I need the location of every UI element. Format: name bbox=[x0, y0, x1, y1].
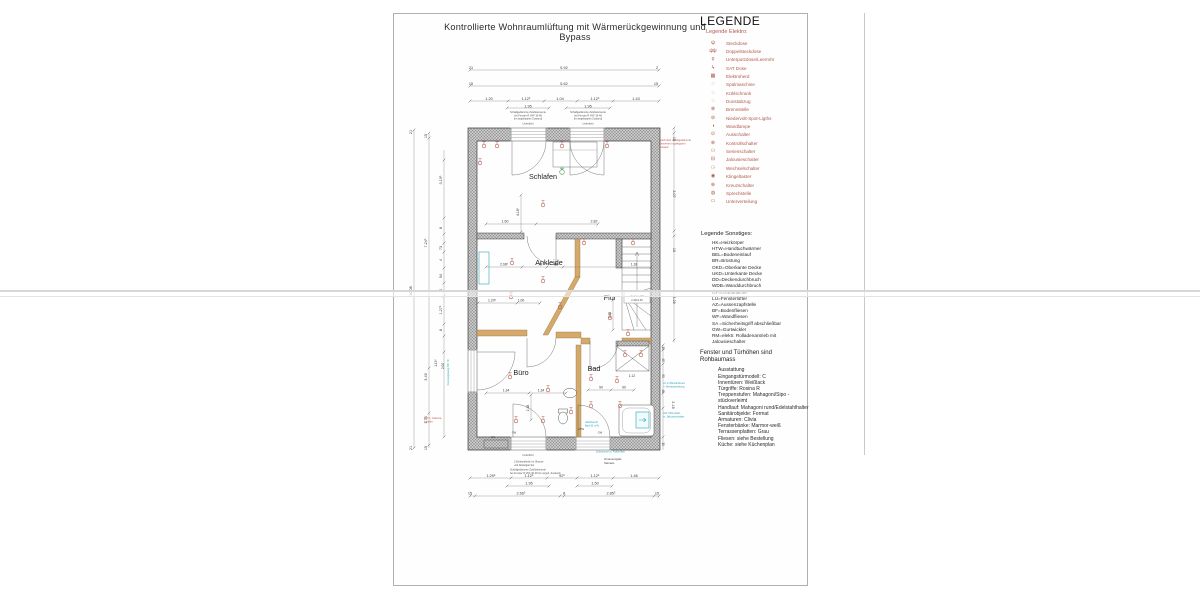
legend-item: ⊛ Kontrollschalter bbox=[700, 139, 812, 147]
legend-symbol-icon: ϙ bbox=[700, 57, 726, 62]
plan-label: 1.18 bbox=[631, 263, 638, 267]
legend-symbol-icon: ⚆ bbox=[700, 166, 726, 171]
legend-sonstiges-heading: Legende Sonstiges: bbox=[701, 231, 812, 237]
legend-symbol-icon: ψψ bbox=[700, 49, 726, 54]
plan-label: Bad bbox=[588, 364, 601, 373]
legend-item: ⚇ Serienschalter bbox=[700, 147, 812, 155]
legend-item-label: Wandlampe bbox=[726, 124, 750, 129]
plan-label: 1.12⁵ bbox=[525, 474, 534, 478]
plan-label: 2.40x1.25 bbox=[631, 298, 643, 302]
legend-item-label: Sprechstelle bbox=[726, 191, 751, 196]
plan-label: 1.20 bbox=[485, 97, 492, 101]
plan-label: HK bbox=[491, 435, 495, 439]
plan-label: 45 bbox=[661, 358, 665, 362]
door-swings bbox=[477, 141, 618, 437]
plan-label: 46 bbox=[661, 389, 665, 393]
plan-label: 15 bbox=[661, 346, 665, 350]
plan-label: 21 bbox=[409, 446, 413, 450]
plan-label: 1.29⁵ bbox=[487, 474, 496, 478]
plan-label: 73 bbox=[439, 246, 443, 250]
legend-item: ⊙ Ausschalter bbox=[700, 131, 812, 139]
plan-label: 4.18⁵ bbox=[516, 207, 520, 216]
plan-label: 2.18 bbox=[671, 401, 675, 408]
legend-symbol-icon: ▦ bbox=[700, 74, 726, 79]
legend-symbol-icon: ⊗ bbox=[700, 107, 726, 112]
legend-symbol-icon: ⊛ bbox=[700, 141, 726, 146]
legend-item-label: Dunstabzug bbox=[726, 99, 751, 104]
legend-item: ◌ Spülmaschine bbox=[700, 81, 812, 89]
legend-item: ϟ SAT Dose bbox=[700, 64, 812, 72]
ausstattung-item: Treppenstufen: Mahagoni/Sipo - stückverl… bbox=[718, 392, 810, 404]
plan-label: 1.95 bbox=[525, 482, 532, 486]
legend-symbol-icon: ◌ bbox=[700, 82, 726, 87]
legend-item-label: Kreuzschalter bbox=[726, 183, 754, 188]
legend-elektro-list: ψ Steckdose ψψ Doppelsteckdose ϙ Unterpu… bbox=[700, 39, 812, 206]
electrical-symbol bbox=[569, 408, 573, 414]
plan-label: 3.26 bbox=[672, 296, 676, 303]
plan-label: 3.10⁵ bbox=[439, 175, 443, 184]
plan-label: Elemente im gekippten bbox=[659, 142, 686, 146]
plan-label: m. Jalousieschalter bbox=[663, 416, 685, 419]
electrical-symbol bbox=[495, 142, 499, 148]
plan-label: 90 bbox=[622, 386, 626, 390]
plan-label: und Ablaufgarnitur bbox=[514, 464, 534, 467]
plan-label: 1.12⁵ bbox=[591, 474, 600, 478]
legend-item: ⊗ Brennstelle bbox=[700, 106, 812, 114]
legend-item: ▦ Elektroherd bbox=[700, 72, 812, 80]
plan-label: 5.62 bbox=[560, 82, 567, 86]
plan-label: 2.82 bbox=[591, 220, 598, 224]
plan-label: 21 bbox=[409, 130, 413, 134]
plan-label: 15 bbox=[655, 492, 659, 496]
plan-label: Unterlicht bbox=[523, 122, 534, 126]
electrical-symbol bbox=[541, 417, 545, 423]
plan-label: 86 bbox=[554, 263, 558, 267]
legend-heading: LEGENDE bbox=[700, 14, 812, 28]
plan-label: 1.95 bbox=[524, 105, 531, 109]
electrical-symbols-layer bbox=[478, 142, 643, 423]
plan-label: 8 bbox=[439, 329, 443, 331]
plan-label: n. Westausrichtung bbox=[663, 386, 685, 389]
plan-label: 2.85⁵ bbox=[607, 492, 616, 496]
plan-label: 4 bbox=[439, 259, 443, 261]
electrical-symbol bbox=[541, 201, 545, 207]
plan-label: 1.20⁵ bbox=[488, 299, 497, 303]
plan-label: 1.34 bbox=[538, 389, 545, 393]
plan-label: GW bbox=[598, 431, 603, 435]
plan-label: 1.27⁵ bbox=[439, 305, 443, 314]
scan-canvas: Kontrollierte Wohnraumlüftung mit Wärmer… bbox=[0, 0, 1200, 600]
legend-symbol-icon: ◑ bbox=[700, 124, 726, 129]
plan-label: 1.43 bbox=[632, 97, 639, 101]
electrical-symbol bbox=[582, 239, 586, 245]
legend-item-label: Spülmaschine bbox=[726, 82, 755, 87]
ausstattung-item: Handlauf: Mahagoni rund/Edelstahlhalter bbox=[718, 405, 810, 411]
plan-label: 1.13⁵ bbox=[434, 359, 438, 367]
electrical-symbol bbox=[541, 277, 545, 283]
legend-item-label: Unterputzdose/Leerrohr bbox=[726, 57, 775, 62]
legend-symbol-icon: ◉ bbox=[700, 174, 726, 179]
plan-label: 1.60 bbox=[502, 220, 509, 224]
ausstattung-item: Küche: siehe Küchenplan bbox=[718, 442, 810, 448]
legend-item-label: Serienschalter bbox=[726, 149, 755, 154]
electrical-symbol bbox=[615, 377, 619, 383]
plan-label: 5.92 bbox=[560, 66, 567, 70]
shower bbox=[616, 346, 649, 371]
legend-item-label: Brennstelle bbox=[726, 107, 749, 112]
legend-item-label: Kontrollschalter bbox=[726, 141, 758, 146]
legend-item: ψ Steckdose bbox=[700, 39, 812, 47]
legend-item: ◍ Sprechstelle bbox=[700, 189, 812, 197]
plan-label: 1.34 bbox=[503, 389, 510, 393]
legend-symbol-icon: ⊕ bbox=[700, 183, 726, 188]
electrical-symbol bbox=[546, 386, 550, 392]
plan-label: 21 bbox=[469, 66, 473, 70]
wardrobe bbox=[479, 252, 489, 284]
plan-label: 90 bbox=[599, 386, 603, 390]
legend-item: ⊕ Kreuzschalter bbox=[700, 181, 812, 189]
electrical-symbol bbox=[589, 375, 593, 381]
electrical-symbol bbox=[508, 373, 512, 379]
plan-label: 1.04 bbox=[556, 97, 563, 101]
legend-symbol-icon: ψ bbox=[700, 41, 726, 46]
electrical-symbol bbox=[605, 142, 609, 148]
legend-item: ◉ Klingeltaster bbox=[700, 173, 812, 181]
legend-item-label: Niedervolt-Spot-Ligths bbox=[726, 116, 771, 121]
plan-label: 94 bbox=[439, 274, 443, 278]
staircase bbox=[622, 239, 651, 330]
plan-label: Bad 60 m³/h bbox=[585, 424, 600, 428]
plan-label: 1.46 bbox=[630, 474, 637, 478]
legend-panel: LEGENDE Legende Elektro: ψ Steckdose ψψ … bbox=[700, 14, 812, 448]
legend-symbol-icon: ⊙ bbox=[700, 132, 726, 137]
plan-label: 15 bbox=[654, 82, 658, 86]
legend-item-label: Unterverteilung bbox=[726, 199, 757, 204]
legend-item-label: SAT Dose bbox=[726, 66, 747, 71]
plan-label: Unterlicht bbox=[523, 453, 534, 457]
legend-item-label: Ausschalter bbox=[726, 132, 750, 137]
bed bbox=[553, 142, 597, 167]
plan-label: Zustand bbox=[659, 145, 669, 149]
legend-elektro-heading: Legende Elektro: bbox=[706, 29, 812, 35]
plan-label: GW bbox=[512, 431, 517, 435]
legend-symbol-icon: ◍ bbox=[700, 191, 726, 196]
legend-item: ▭ Unterverteilung bbox=[700, 198, 812, 206]
electrical-symbol bbox=[626, 330, 630, 336]
plan-label: 1.53 bbox=[608, 312, 612, 319]
plan-label: 1.50 bbox=[591, 482, 598, 486]
legend-item-label: Klingeltaster bbox=[726, 174, 751, 179]
plan-label: 1.12⁵ bbox=[522, 97, 531, 101]
plan-label: 8 bbox=[439, 227, 443, 229]
legend-item: ψψ Doppelsteckdose bbox=[700, 47, 812, 55]
plan-label: 15 bbox=[469, 82, 473, 86]
legend-item-label: Steckdose bbox=[726, 41, 747, 46]
legend-item-label: Elektroherd bbox=[726, 74, 750, 79]
legend-symbol-icon: ⊘ bbox=[700, 116, 726, 121]
electrical-symbol bbox=[631, 239, 635, 245]
radiator bbox=[484, 440, 508, 448]
legend-abbrev: RM=elektr. Rolladenantrieb mit Jalousies… bbox=[712, 333, 807, 345]
plan-label: 90 bbox=[661, 374, 665, 378]
ausstattung-list: Eingangstürmodell: CInnentüren: Weißlack… bbox=[718, 374, 812, 448]
plan-label: 15 bbox=[672, 137, 676, 141]
plan-label: 15 bbox=[672, 248, 676, 252]
plan-label: 15 bbox=[661, 442, 665, 446]
legend-item-label: Doppelsteckdose bbox=[726, 49, 761, 54]
legend-item-label: Wechselschalter bbox=[726, 166, 760, 171]
plan-label: (im angekippten Zustand) bbox=[514, 118, 543, 121]
outer-walls bbox=[468, 128, 660, 450]
plan-label: bei Fenster R VKF 36 48 (im angek. Zusta… bbox=[510, 472, 561, 475]
plan-label: Zuluftventil m. Pollenfilter bbox=[596, 450, 625, 454]
plan-label: Abluftventil bbox=[585, 420, 598, 424]
plan-label: 1.12 bbox=[629, 374, 635, 378]
electrical-symbol bbox=[589, 402, 593, 408]
plan-label: 2.08⁵ bbox=[500, 263, 509, 267]
legend-item: ◑ Wandlampe bbox=[700, 122, 812, 130]
rohbaumass-note: Fenster und Türhöhen sind Rohbaumass bbox=[700, 350, 778, 364]
plan-label: 1.12⁵ bbox=[591, 97, 600, 101]
plan-label: 1.00 bbox=[518, 299, 525, 303]
legend-symbol-icon: ▭ bbox=[700, 199, 726, 204]
electrical-symbol bbox=[482, 142, 486, 148]
legend-symbol-icon: ⊟ bbox=[700, 157, 726, 162]
toilet bbox=[559, 409, 568, 424]
plan-label: 8 bbox=[563, 492, 565, 496]
plan-label: Unterlicht bbox=[583, 122, 594, 126]
legend-symbol-icon: ⚇ bbox=[700, 149, 726, 154]
plan-label: 15 bbox=[424, 446, 428, 450]
plan-label: 1.95 bbox=[584, 105, 591, 109]
plan-label: Satinato bbox=[604, 461, 615, 465]
electrical-symbol bbox=[514, 417, 518, 423]
plan-label: 3.49 bbox=[424, 373, 428, 380]
plan-label: 92⁵ bbox=[559, 474, 565, 478]
legend-item: ◌ Dunstabzug bbox=[700, 97, 812, 105]
vent-arrow bbox=[636, 412, 649, 428]
plan-label: HTW bbox=[578, 427, 584, 431]
scan-edge-line bbox=[864, 13, 865, 455]
plant-symbol bbox=[560, 167, 565, 174]
electrical-symbol bbox=[478, 159, 482, 165]
plan-label: 15 bbox=[468, 492, 472, 496]
plan-label: Festverglasung BR 73⁵ bbox=[446, 359, 450, 386]
plan-label: 2 bbox=[656, 66, 658, 70]
legend-item: ⚆ Wechselschalter bbox=[700, 164, 812, 172]
electrical-symbol bbox=[510, 259, 514, 265]
plan-label: 2.66⁵ bbox=[517, 492, 526, 496]
legend-symbol-icon: ◌ bbox=[700, 99, 726, 104]
plan-label: 15 bbox=[424, 134, 428, 138]
plan-label: (im angekippten Zustand) bbox=[574, 118, 603, 121]
ausstattung-block: Ausstattung Eingangstürmodell: CInnentür… bbox=[718, 367, 812, 448]
legend-item: ◌ Kühlschrank bbox=[700, 89, 812, 97]
legend-item: ϙ Unterputzdose/Leerrohr bbox=[700, 56, 812, 64]
legend-item: ⊘ Niedervolt-Spot-Ligths bbox=[700, 114, 812, 122]
plan-label: 2.38 bbox=[526, 405, 530, 412]
floor-plan: 215.922155.62151.201.12⁵1.041.12⁵1.431.9… bbox=[0, 0, 1200, 600]
legend-item-label: Jalousieschalter bbox=[726, 157, 759, 162]
legend-symbol-icon: ϟ bbox=[700, 66, 726, 71]
plan-label: 78 bbox=[538, 263, 542, 267]
plan-label: 2.00 bbox=[441, 363, 445, 369]
plan-label: 7.24⁵ bbox=[424, 238, 428, 247]
legend-symbol-icon: ◌ bbox=[700, 91, 726, 96]
scan-seam-lower bbox=[0, 296, 1200, 297]
plan-label: 3.07 bbox=[672, 190, 676, 197]
plan-label: Büro bbox=[513, 368, 528, 377]
plan-label: Schlafen bbox=[529, 172, 557, 181]
legend-item: ⊟ Jalousieschalter bbox=[700, 156, 812, 164]
legend-item-label: Kühlschrank bbox=[726, 91, 751, 96]
plan-label: schalter bbox=[424, 420, 433, 423]
